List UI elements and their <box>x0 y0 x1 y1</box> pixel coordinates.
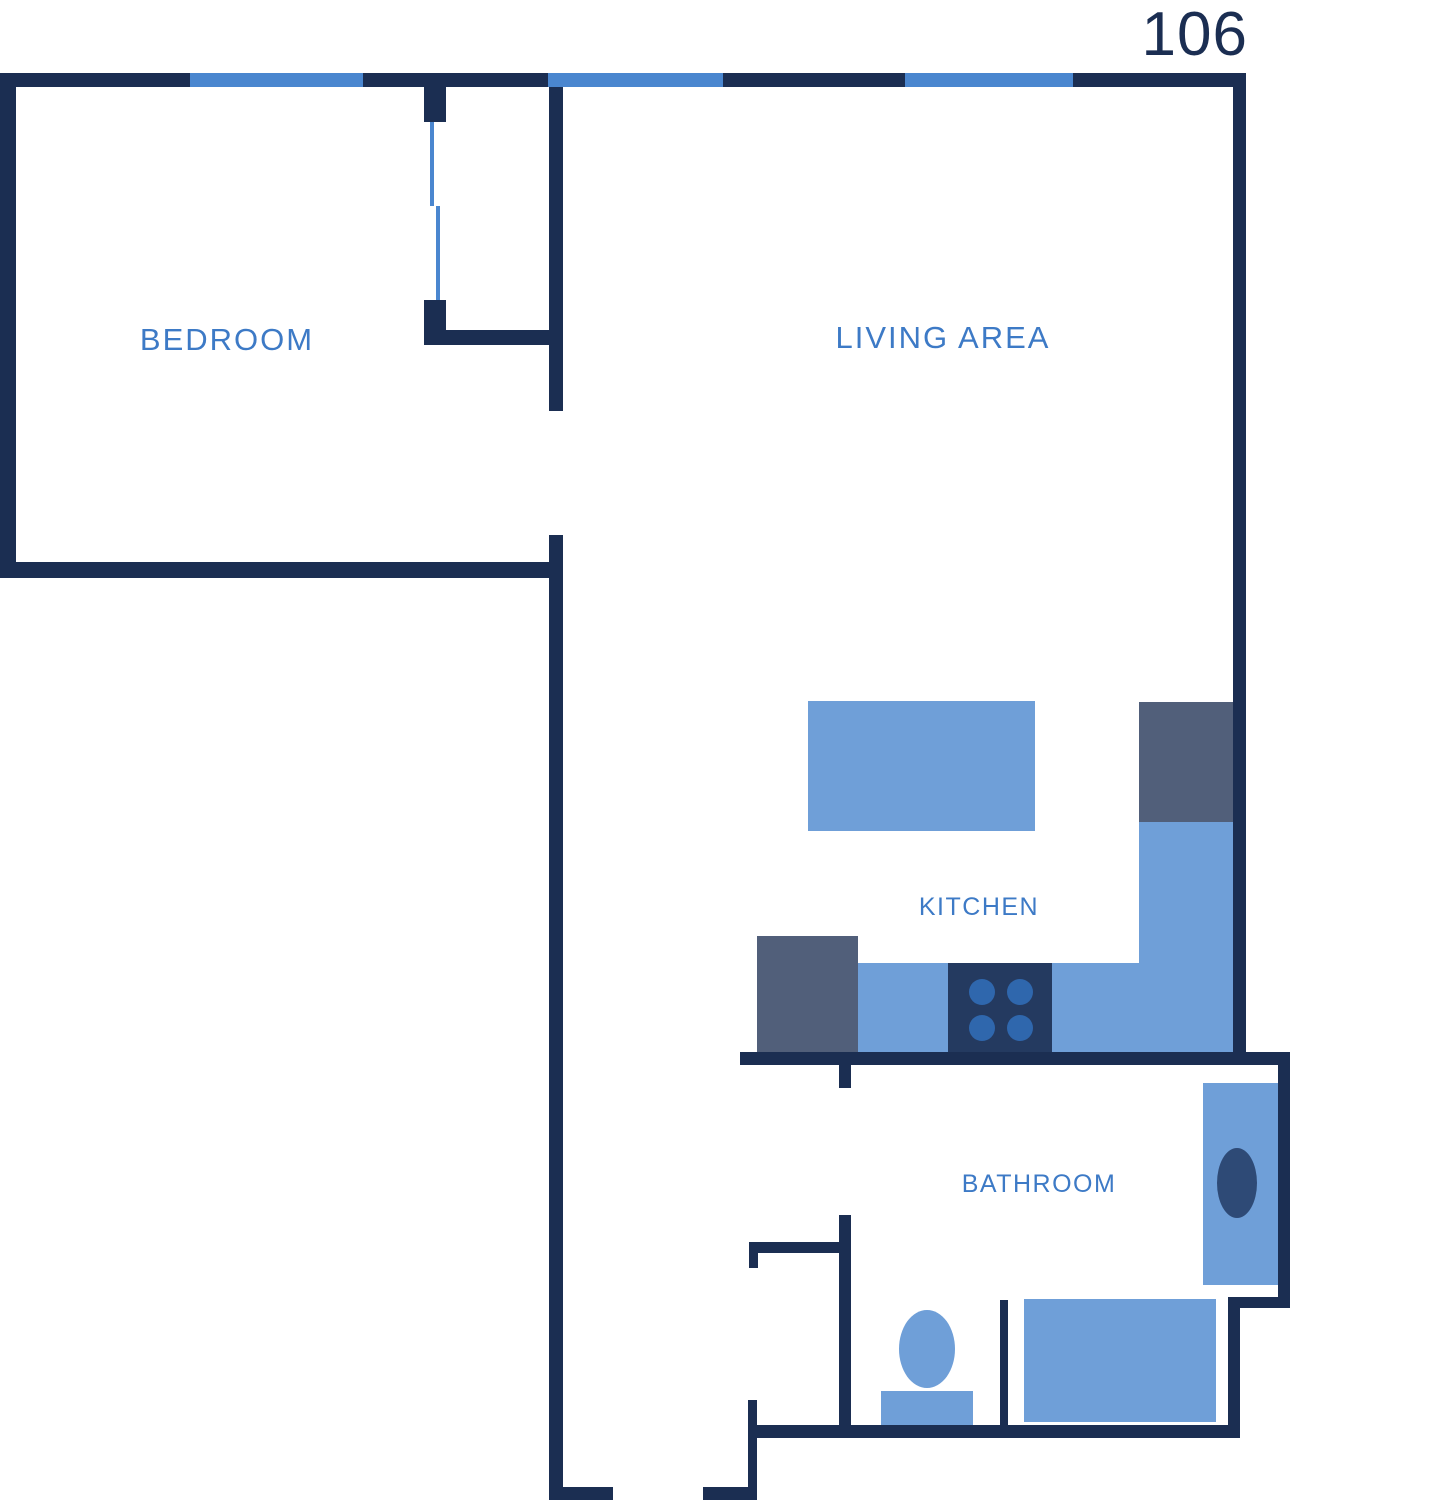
bedroom-bottom-wall <box>0 562 563 578</box>
divider-wall-lower <box>549 535 563 1487</box>
refrigerator <box>757 936 858 1052</box>
floor-plan: 106 BEDROOM LIVING <box>0 0 1432 1500</box>
window-3 <box>905 73 1073 87</box>
bathroom-left-wall-stub <box>839 1065 851 1088</box>
window-2 <box>548 73 723 87</box>
closet-sliding-door-panel-1 <box>430 122 434 206</box>
window-1 <box>190 73 363 87</box>
stove-burner-2 <box>1007 979 1033 1005</box>
bathroom-bottom-wall <box>757 1425 1240 1438</box>
divider-wall-upper <box>549 87 563 411</box>
kitchen-island <box>808 701 1035 831</box>
closet-bottom-wall <box>424 330 550 345</box>
bedroom-label: BEDROOM <box>57 322 397 358</box>
entry-door-stub-right <box>703 1487 757 1500</box>
bathroom-right-wall <box>1278 1052 1290 1308</box>
living-area-label: LIVING AREA <box>773 320 1113 356</box>
vanity-sink <box>1217 1148 1257 1218</box>
left-wall <box>0 73 16 578</box>
entry-door-stub-left <box>549 1487 613 1500</box>
bathtub <box>1024 1299 1216 1422</box>
kitchen-bottom-wall <box>740 1052 1290 1065</box>
entry-hall-wall <box>748 1400 757 1499</box>
bathroom-label: BATHROOM <box>939 1170 1139 1199</box>
hall-closet-wall <box>749 1242 851 1253</box>
unit-number-label: 106 <box>1000 0 1248 70</box>
stove-burner-3 <box>969 1015 995 1041</box>
hall-closet-wall-stub <box>749 1242 758 1268</box>
toilet-tank <box>881 1391 973 1425</box>
right-wall <box>1233 73 1246 1065</box>
upper-cabinet <box>1139 702 1233 822</box>
toilet-bowl <box>899 1310 955 1388</box>
closet-wall-top-stub <box>424 87 446 122</box>
kitchen-label: KITCHEN <box>879 893 1079 922</box>
closet-sliding-door-panel-2 <box>436 206 440 300</box>
toilet-divider-wall <box>1000 1300 1008 1425</box>
stove-burner-4 <box>1007 1015 1033 1041</box>
stove <box>948 963 1052 1052</box>
stove-burner-1 <box>969 979 995 1005</box>
bathroom-step-wall-vertical <box>1228 1297 1240 1437</box>
